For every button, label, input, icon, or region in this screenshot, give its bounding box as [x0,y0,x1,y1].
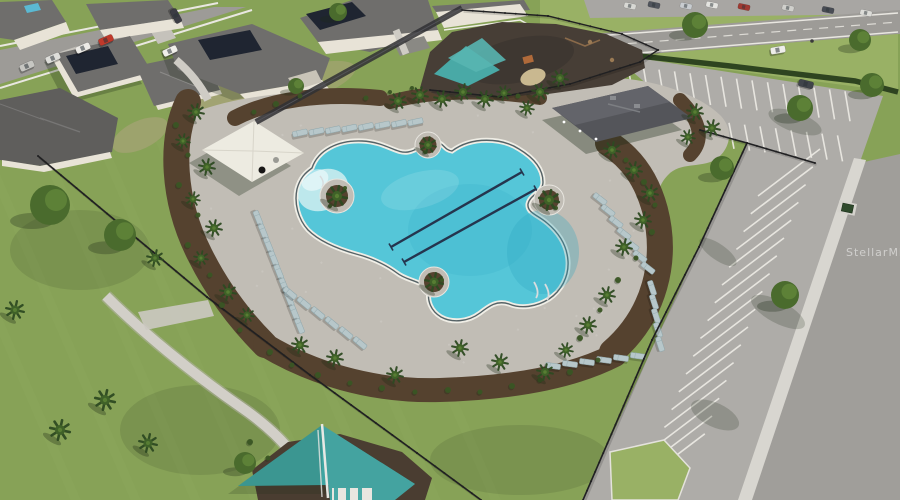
fence-post [621,33,623,35]
fence-post [670,302,672,304]
fence-post [775,151,777,153]
fence-post [206,296,208,298]
fence-post [684,274,686,276]
pavilion-column [595,138,598,141]
shrub [388,90,392,94]
shrub [615,277,621,283]
fence-post [648,55,650,57]
fence-post [275,348,277,350]
fence-post [795,156,797,158]
pavilion-column [563,121,566,124]
palm-crown-center [543,370,547,374]
shrub [641,179,647,185]
palm-crown-center [298,343,302,347]
fence-post [702,237,704,239]
fence-post [579,23,581,25]
fence-post [689,265,691,267]
fence-post [647,348,649,350]
palm-crown-center [199,256,202,259]
shrub [410,86,414,90]
fence-post [283,355,285,357]
fence-post [91,200,93,202]
fence-post [479,94,481,96]
fence-post [814,162,816,164]
fence-post [711,218,713,220]
shrub [247,439,253,445]
roof-vent [610,96,616,100]
palm-crown-center [13,308,17,312]
fence-post [602,452,604,454]
shrub [478,390,483,395]
palm-crown-center [686,135,689,138]
fence-post [358,410,360,412]
tree-canopy-highlight [45,189,67,211]
fence-post [547,15,549,17]
palm-crown-center [393,373,397,377]
fence-post [52,168,54,170]
fence-post [569,83,571,85]
fence-post [623,405,625,407]
fence-post [698,246,700,248]
palm-crown-center [538,90,542,94]
fence-post [266,342,268,344]
palm-crown-center [440,97,444,101]
aerial-photo: StellarMLS [0,0,900,500]
shrub [509,383,515,389]
fence-post [175,270,177,272]
palm-crown-center [648,191,652,195]
fence-post [679,283,681,285]
tree-canopy-highlight [116,222,134,240]
fence-post [639,367,641,369]
shrub [516,94,521,99]
fence-post [633,38,635,40]
aerial-photo-viewport: StellarMLS [0,0,900,500]
palm-crown-center [58,428,62,432]
fence-post [472,10,474,12]
shrub [577,335,583,341]
tree-canopy-highlight [336,5,346,15]
fence-post [350,404,352,406]
fence-post [599,74,601,76]
palm-crown-center [103,398,107,402]
fence-post [629,64,631,66]
fence-post [45,161,47,163]
fence-post [309,374,311,376]
paver-speckle [593,308,595,310]
palm-crown-center [483,97,487,101]
fence-post [651,339,653,341]
shrub [208,273,213,278]
fence-post [707,227,709,229]
fence-post [317,380,319,382]
tree-canopy-highlight [869,75,882,88]
fence-post [416,452,418,454]
fence-post [765,148,767,150]
shrub [598,308,603,313]
shrub [252,110,257,115]
shrub [379,385,385,391]
fence-post [785,153,787,155]
shrub [567,369,573,375]
paver-speckle [448,344,450,346]
fence-post [98,206,100,208]
fence-post [586,490,588,492]
fence-post [804,159,806,161]
palm-crown-center [610,148,614,152]
palm-crown-center [586,323,590,327]
shrub [290,363,295,368]
palm-crown-center [335,194,339,198]
tree-canopy-highlight [692,15,706,29]
shrub [348,381,353,386]
palm-crown-center [622,245,626,249]
palm-crown-center [153,256,157,260]
palm-crown-center [710,126,714,130]
fence-post [471,492,473,494]
palm-crown-center [205,165,209,169]
fence-post [342,398,344,400]
fence-post [568,20,570,22]
fence-post [610,433,612,435]
fence-post [168,264,170,266]
palm-crown-center [502,91,505,94]
fence-post [598,461,600,463]
palm-crown-center [418,93,422,97]
fence-post [408,446,410,448]
fence-post [645,44,647,46]
palm-crown-center [632,168,636,172]
shrub [173,122,179,128]
fence-post [37,155,39,157]
shrub [315,372,321,378]
fence-post [425,459,427,461]
fence-post [579,80,581,82]
fence-post [589,77,591,79]
paver-speckle [305,291,307,293]
fence-post [137,238,139,240]
fence-post [589,25,591,27]
fence-post [635,377,637,379]
palm-crown-center [181,139,184,142]
shrub [185,242,191,248]
pool-depth-shading [507,210,579,294]
pavilion-column [579,130,582,133]
fence-post [558,18,560,20]
tree-canopy-highlight [782,284,797,299]
fence-post [594,471,596,473]
palm-crown-center [641,218,645,222]
shrub [649,229,655,235]
paver-speckle [210,208,212,210]
fence-post [627,395,629,397]
fence-post [191,283,193,285]
shrub [634,256,639,261]
shrub [413,390,418,395]
palm-crown-center [461,90,465,94]
fence-post [715,208,717,210]
shrub [238,328,243,333]
fence-post [619,67,621,69]
shrub [596,358,601,363]
fence-post [756,145,758,147]
fence-post [526,14,528,16]
fence-post [249,329,251,331]
palm-crown-center [525,106,528,109]
fence-post [483,11,485,13]
fence-post [223,309,225,311]
watermark: StellarMLS [846,246,900,259]
picnic-table [588,40,592,44]
fence-post [183,277,185,279]
fence-post [643,358,645,360]
shrub [196,213,201,218]
shrub [298,94,303,99]
shrub [364,96,369,101]
palm-crown-center [693,110,697,114]
fence-post [606,443,608,445]
fence-post [723,136,725,138]
fence-post [737,161,739,163]
picnic-table [610,58,614,62]
fence-post [631,386,633,388]
fence-post [367,416,369,418]
fence-post [443,472,445,474]
fence-post [75,187,77,189]
fence-post [720,199,722,201]
palm-crown-center [226,290,230,294]
palm-crown-center [245,313,248,316]
shrub [273,101,279,107]
fence-post [334,392,336,394]
fence-post [60,174,62,176]
fence-post [639,61,641,63]
tree-canopy-highlight [294,80,303,89]
fence-post [325,386,327,388]
fence-post [145,245,147,247]
fence-post [657,49,659,51]
fence-post [515,13,517,15]
fence-post [549,87,551,89]
fence-post [693,255,695,257]
fence-post [453,479,455,481]
fence-post [106,213,108,215]
tree-canopy-highlight [719,158,732,171]
shrub [266,456,271,461]
fence-post [258,335,260,337]
fence-post [300,368,302,370]
palm-crown-center [396,99,400,103]
fence-post [600,28,602,30]
fence-post [529,90,531,92]
tree-canopy-highlight [857,31,869,43]
fence-post [462,486,464,488]
paver-speckle [477,114,479,116]
fence-post [729,180,731,182]
palm-crown-center [212,226,216,230]
shrub [445,387,451,393]
fence-post [660,320,662,322]
fence-post [391,434,393,436]
shrub [653,203,658,208]
fence-post [742,151,744,153]
fence-post [232,316,234,318]
palm-crown-center [426,143,430,147]
fence-post [83,193,85,195]
fence-post [734,139,736,141]
fence-post [449,91,451,93]
fence-post [610,30,612,32]
shrub [176,182,182,188]
palm-crown-center [146,441,150,445]
person [810,39,814,43]
palm-crown-center [432,280,436,284]
palm-crown-center [547,198,551,202]
fence-post [609,70,611,72]
fence-post [215,303,217,305]
fence-post [746,142,748,144]
fence-post [665,311,667,313]
shrub [186,153,191,158]
tree-canopy-highlight [797,98,811,112]
tree-canopy-highlight [242,454,254,466]
car-windshield [775,47,780,52]
fence-post [493,11,495,13]
shrub [624,158,629,163]
palm-crown-center [558,76,562,80]
palm-crown-center [458,346,462,350]
shrub [267,349,273,355]
fence-post [619,414,621,416]
palm-crown-center [498,360,502,364]
fence-post [536,14,538,16]
fence-post [375,422,377,424]
fence-post [198,290,200,292]
fence-post [434,465,436,467]
fence-post [614,424,616,426]
palm-crown-center [194,110,198,114]
palm-crown-center [564,348,567,351]
fence-post [675,293,677,295]
palm-crown-center [191,197,194,200]
fence-post [400,440,402,442]
palm-crown-center [333,356,337,360]
table [259,167,266,174]
fence-post [383,428,385,430]
roof-vent [634,104,640,108]
fence-post [656,330,658,332]
fence-post [68,181,70,183]
palm-crown-center [605,293,609,297]
table [273,157,279,163]
fence-post [724,189,726,191]
fence-post [504,12,506,14]
fence-post [439,90,441,92]
fence-post [590,480,592,482]
fence-post [429,89,431,91]
